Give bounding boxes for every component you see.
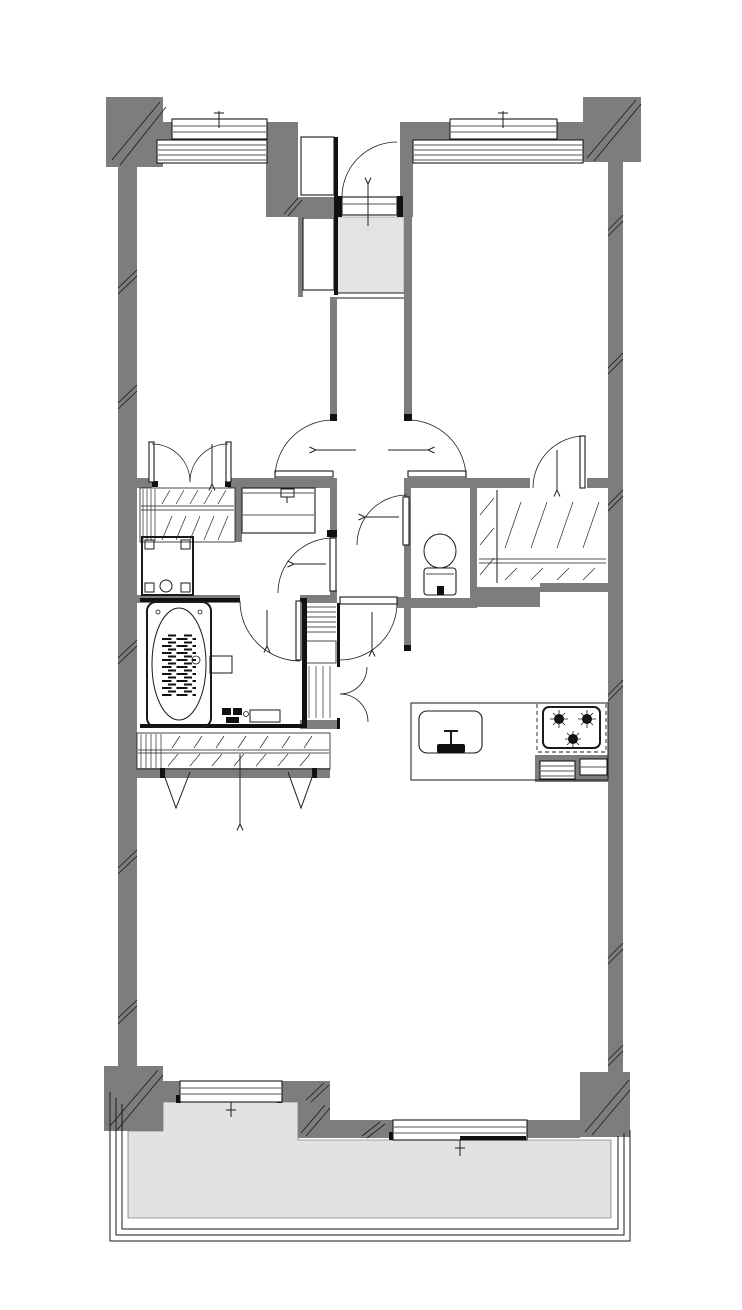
burner (550, 710, 568, 728)
washroom-door (278, 538, 336, 593)
bath-shelf (210, 656, 232, 673)
washing-machine-pan (142, 537, 193, 595)
bath-counter-faucet (222, 708, 280, 723)
porch-recess (301, 137, 334, 195)
window-bench-louvers-left (157, 140, 267, 163)
shoe-cabinet (303, 218, 334, 290)
bathroom (147, 602, 280, 727)
ldk-door (340, 597, 397, 660)
left-wall (118, 160, 137, 1068)
lower-closet-interior (137, 733, 330, 769)
bedroom-left-door (275, 420, 333, 478)
toilet-door (357, 495, 409, 545)
bathtub (147, 602, 211, 727)
burner (565, 731, 581, 747)
floor-plan-canvas (0, 0, 742, 1310)
closet-left-interior (140, 488, 235, 542)
closet-right-door (533, 436, 585, 488)
gas-stove-3-burner (537, 703, 606, 752)
burner (578, 710, 596, 728)
balcony-floor (128, 1102, 611, 1218)
sliding-window-top-right (450, 111, 557, 139)
sliding-window-top-left (172, 111, 267, 139)
closet-left-double-doors (149, 442, 231, 482)
column-bottom-right (580, 1072, 630, 1137)
linen-shelf-column (303, 607, 336, 718)
toilet-with-tank (424, 534, 456, 595)
entrance-swing-door (342, 142, 397, 215)
washbasin-vanity (242, 488, 315, 533)
entry-tile-floor (337, 217, 404, 293)
floor-fills (128, 217, 611, 1218)
window-bench-louvers-right (413, 140, 583, 163)
floor-plan-page (0, 0, 742, 1310)
bedroom-right-door (408, 420, 466, 478)
right-wall (608, 162, 623, 1072)
kitchen-sink (419, 711, 482, 753)
closet-right-interior (479, 490, 606, 583)
bathroom-door (240, 601, 301, 661)
storage-double-doors (340, 667, 368, 722)
